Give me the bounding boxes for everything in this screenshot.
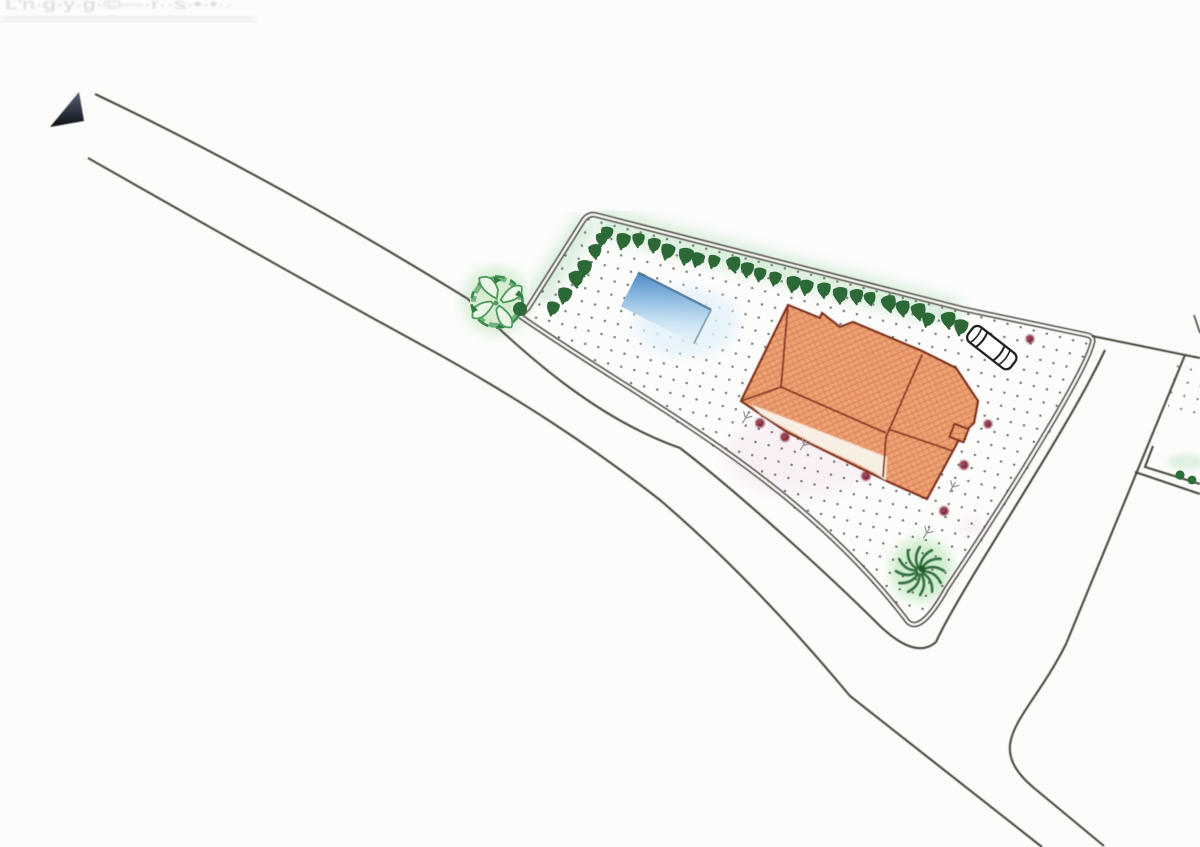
svg-text:L'n·g·y·g·©—·r··s·•·•··: L'n·g·y·g·©—·r··s·•·•·· — [5, 0, 233, 13]
